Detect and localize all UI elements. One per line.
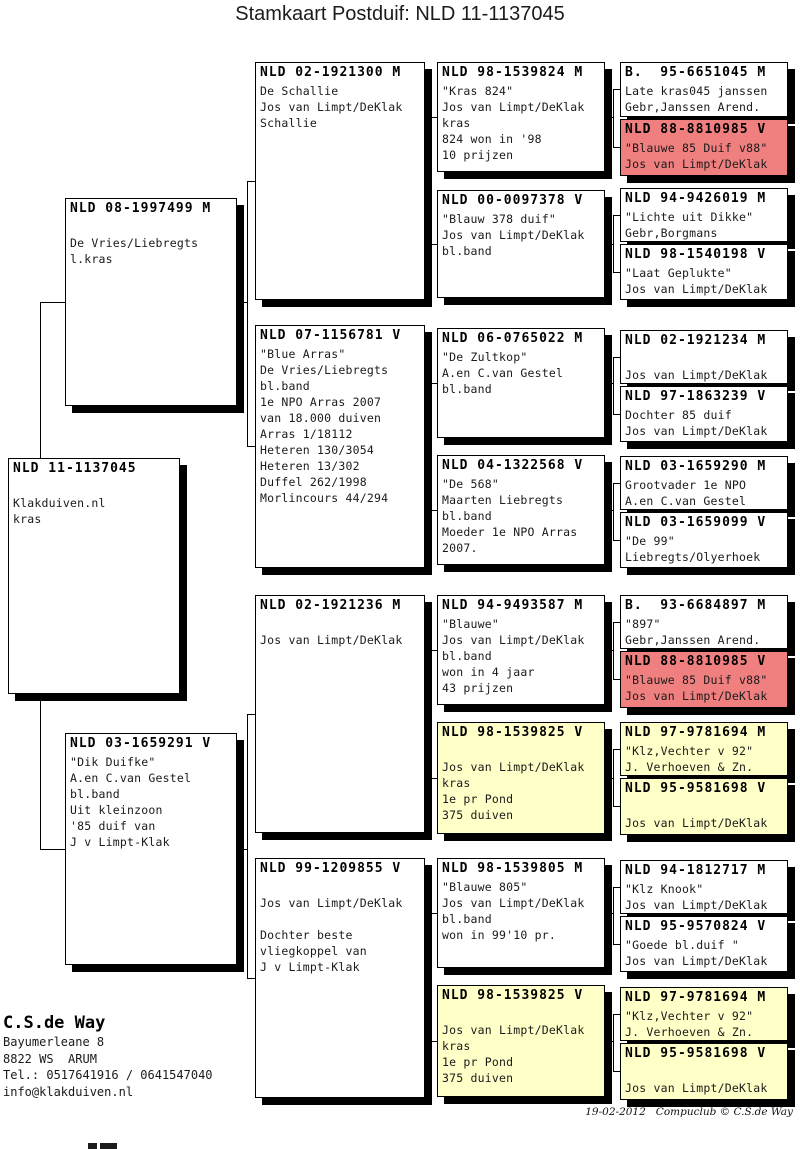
ring-number: NLD 00-0097378 V — [442, 192, 600, 210]
ring-number: NLD 04-1322568 V — [442, 457, 600, 475]
box-text-line: 1e pr Pond — [442, 791, 600, 807]
box-text-line: Late kras045 janssen — [625, 83, 783, 99]
box-text-line — [70, 219, 232, 235]
box-text-line: '85 duif van — [70, 818, 232, 834]
pedigree-box-dss: NLD 94-9493587 M"Blauwe"Jos van Limpt/De… — [437, 595, 605, 705]
pedigree-box-sds-d: NLD 97-1863239 VDochter 85 duifJos van L… — [620, 386, 788, 442]
box-text-line: kras — [442, 1038, 600, 1054]
box-text-line: Jos van Limpt/DeKlak — [442, 759, 600, 775]
ring-number: NLD 97-1863239 V — [625, 388, 783, 406]
ring-number: NLD 06-0765022 M — [442, 330, 600, 348]
box-text-line: kras — [442, 775, 600, 791]
box-text-line: "Klz,Vechter v 92" — [625, 1008, 783, 1024]
box-text-line: Jos van Limpt/DeKlak — [442, 1022, 600, 1038]
ring-number: NLD 03-1659099 V — [625, 514, 783, 532]
box-text-line: won in 4 jaar — [442, 664, 600, 680]
box-text-line: Heteren 130/3054 — [260, 442, 420, 458]
box-text-line: bl.band — [442, 648, 600, 664]
box-text-line: bl.band — [442, 381, 600, 397]
box-text-line: bl.band — [70, 786, 232, 802]
pedigree-box-dds-d: NLD 95-9570824 V"Goede bl.duif "Jos van … — [620, 916, 788, 972]
pedigree-box-ddd: NLD 98-1539825 V Jos van Limpt/DeKlakkra… — [437, 985, 605, 1097]
box-text-line: Jos van Limpt/DeKlak — [625, 1080, 783, 1096]
pedigree-box-sdd-s: NLD 03-1659290 MGrootvader 1e NPOA.en C.… — [620, 456, 788, 510]
pedigree-tree: NLD 11-1137045 Klakduiven.nlkrasNLD 08-1… — [0, 0, 800, 1149]
box-text-line: Jos van Limpt/DeKlak — [625, 423, 783, 439]
box-text-line: Klakduiven.nl — [13, 495, 175, 511]
pedigree-box-ddd-s: NLD 97-9781694 M"Klz,Vechter v 92"J. Ver… — [620, 987, 788, 1041]
ring-number: NLD 98-1540198 V — [625, 246, 783, 264]
box-text-line: "Dik Duifke" — [70, 754, 232, 770]
ring-number: NLD 02-1921236 M — [260, 597, 420, 615]
pedigree-box-ds: NLD 02-1921236 M Jos van Limpt/DeKlak — [255, 595, 425, 833]
ring-number: NLD 97-9781694 M — [625, 724, 783, 742]
owner-address-line1: Bayumerleane 8 — [3, 1034, 213, 1051]
pedigree-box-ssd-d: NLD 98-1540198 V"Laat Geplukte"Jos van L… — [620, 244, 788, 300]
ring-number: NLD 99-1209855 V — [260, 860, 420, 878]
box-text-line: "Klz Knook" — [625, 881, 783, 897]
ring-number: NLD 98-1539805 M — [442, 860, 600, 878]
box-text-line: J v Limpt-Klak — [70, 834, 232, 850]
box-text-line — [442, 1006, 600, 1022]
box-text-line: "Lichte uit Dikke" — [625, 209, 783, 225]
print-info: 19-02-2012 Compuclub © C.S.de Way — [585, 1106, 793, 1118]
box-text-line — [625, 351, 783, 367]
box-text-line: "De Zultkop" — [442, 349, 600, 365]
stamkaart-page: Stamkaart Postduif: NLD 11-1137045 NLD 1… — [0, 0, 800, 1149]
box-text-line: 375 duiven — [442, 1070, 600, 1086]
box-text-line: bl.band — [442, 508, 600, 524]
box-text-line — [260, 879, 420, 895]
pedigree-box-sd: NLD 07-1156781 V"Blue Arras"De Vries/Lie… — [255, 325, 425, 568]
box-text-line: Schallie — [260, 115, 420, 131]
box-text-line: J. Verhoeven & Zn. — [625, 1024, 783, 1040]
box-text-line: De Vries/Liebregts — [70, 235, 232, 251]
pedigree-box-ssd: NLD 00-0097378 V"Blauw 378 duif"Jos van … — [437, 190, 605, 298]
box-text-line: Maarten Liebregts — [442, 492, 600, 508]
pedigree-box-dsd-s: NLD 97-9781694 M"Klz,Vechter v 92"J. Ver… — [620, 722, 788, 776]
pedigree-box-dsd-d: NLD 95-9581698 V Jos van Limpt/DeKlak — [620, 778, 788, 835]
ring-number: NLD 88-8810985 V — [625, 653, 783, 671]
box-text-line: "Blue Arras" — [260, 346, 420, 362]
pedigree-box-dss-s: B. 93-6684897 M"897"Gebr,Janssen Arend. — [620, 595, 788, 649]
box-text-line: J v Limpt-Klak — [260, 959, 420, 975]
ring-number: NLD 94-9493587 M — [442, 597, 600, 615]
box-text-line: 824 won in '98 — [442, 131, 600, 147]
box-text-line: J. Verhoeven & Zn. — [625, 759, 783, 775]
ring-number: NLD 98-1539825 V — [442, 724, 600, 742]
pedigree-box-sss: NLD 98-1539824 M"Kras 824"Jos van Limpt/… — [437, 62, 605, 172]
box-text-line: "Blauwe 85 Duif v88" — [625, 140, 783, 156]
ring-number: NLD 95-9581698 V — [625, 1045, 783, 1063]
box-text-line: Dochter 85 duif — [625, 407, 783, 423]
box-text-line — [625, 799, 783, 815]
ring-number: NLD 08-1997499 M — [70, 200, 232, 218]
ring-number: NLD 02-1921234 M — [625, 332, 783, 350]
box-text-line: Jos van Limpt/DeKlak — [442, 227, 600, 243]
box-text-line: "Blauw 378 duif" — [442, 211, 600, 227]
box-text-line — [13, 479, 175, 495]
box-text-line — [442, 743, 600, 759]
box-text-line: Arras 1/18112 — [260, 426, 420, 442]
box-text-line: Jos van Limpt/DeKlak — [442, 99, 600, 115]
box-text-line: Jos van Limpt/DeKlak — [625, 688, 783, 704]
ring-number: NLD 11-1137045 — [13, 460, 175, 478]
pedigree-box-ddd-d: NLD 95-9581698 V Jos van Limpt/DeKlak — [620, 1043, 788, 1100]
box-text-line: Grootvader 1e NPO — [625, 477, 783, 493]
pedigree-box-dd: NLD 99-1209855 V Jos van Limpt/DeKlak Do… — [255, 858, 425, 1098]
box-text-line: "De 99" — [625, 533, 783, 549]
box-text-line: "Klz,Vechter v 92" — [625, 743, 783, 759]
box-text-line: 43 prijzen — [442, 680, 600, 696]
ring-number: NLD 03-1659291 V — [70, 735, 232, 753]
owner-contact-block: C.S.de Way Bayumerleane 8 8822 WS ARUM T… — [3, 1012, 213, 1100]
box-text-line: l.kras — [70, 251, 232, 267]
box-text-line: "Goede bl.duif " — [625, 937, 783, 953]
ring-number: NLD 94-1812717 M — [625, 862, 783, 880]
ring-number: B. 93-6684897 M — [625, 597, 783, 615]
box-text-line: Uit kleinzoon — [70, 802, 232, 818]
owner-address-line2: 8822 WS ARUM — [3, 1051, 213, 1068]
pedigree-box-subject: NLD 11-1137045 Klakduiven.nlkras — [8, 458, 180, 694]
box-text-line: Gebr,Janssen Arend. — [625, 632, 783, 648]
box-text-line: bl.band — [442, 243, 600, 259]
pedigree-box-dds-s: NLD 94-1812717 M"Klz Knook"Jos van Limpt… — [620, 860, 788, 914]
box-text-line: Gebr,Janssen Arend. — [625, 99, 783, 115]
owner-email: info@klakduiven.nl — [3, 1084, 213, 1101]
box-text-line: Jos van Limpt/DeKlak — [625, 367, 783, 383]
cropped-text-artifact — [100, 1143, 117, 1149]
pedigree-box-sdd: NLD 04-1322568 V"De 568"Maarten Liebregt… — [437, 455, 605, 565]
box-text-line: "Laat Geplukte" — [625, 265, 783, 281]
box-text-line: Heteren 13/302 — [260, 458, 420, 474]
box-text-line: Jos van Limpt/DeKlak — [625, 897, 783, 913]
box-text-line: van 18.000 duiven — [260, 410, 420, 426]
box-text-line: Jos van Limpt/DeKlak — [625, 281, 783, 297]
box-text-line: "De 568" — [442, 476, 600, 492]
ring-number: NLD 95-9570824 V — [625, 918, 783, 936]
box-text-line: Morlincours 44/294 — [260, 490, 420, 506]
box-text-line: won in 99'10 pr. — [442, 927, 600, 943]
ring-number: NLD 88-8810985 V — [625, 121, 783, 139]
box-text-line: "Blauwe 805" — [442, 879, 600, 895]
ring-number: NLD 95-9581698 V — [625, 780, 783, 798]
box-text-line: A.en C.van Gestel — [70, 770, 232, 786]
box-text-line: kras — [442, 115, 600, 131]
pedigree-box-dam: NLD 03-1659291 V"Dik Duifke"A.en C.van G… — [65, 733, 237, 965]
ring-number: NLD 98-1539824 M — [442, 64, 600, 82]
ring-number: NLD 97-9781694 M — [625, 989, 783, 1007]
box-text-line: Gebr,Borgmans — [625, 225, 783, 241]
ring-number: NLD 07-1156781 V — [260, 327, 420, 345]
box-text-line: kras — [13, 511, 175, 527]
box-text-line: bl.band — [442, 911, 600, 927]
box-text-line: Jos van Limpt/DeKlak — [442, 632, 600, 648]
box-text-line: A.en C.van Gestel — [442, 365, 600, 381]
pedigree-box-sds: NLD 06-0765022 M"De Zultkop"A.en C.van G… — [437, 328, 605, 438]
box-text-line: Liebregts/Olyerhoek — [625, 549, 783, 565]
box-text-line: Jos van Limpt/DeKlak — [625, 815, 783, 831]
box-text-line: Jos van Limpt/DeKlak — [625, 953, 783, 969]
ring-number: NLD 94-9426019 M — [625, 190, 783, 208]
box-text-line: Dochter beste — [260, 927, 420, 943]
pedigree-box-ss: NLD 02-1921300 MDe SchallieJos van Limpt… — [255, 62, 425, 300]
box-text-line: 1e NPO Arras 2007 — [260, 394, 420, 410]
ring-number: NLD 98-1539825 V — [442, 987, 600, 1005]
box-text-line: Jos van Limpt/DeKlak — [260, 895, 420, 911]
box-text-line — [260, 911, 420, 927]
ring-number: NLD 03-1659290 M — [625, 458, 783, 476]
pedigree-box-sss-s: B. 95-6651045 MLate kras045 janssenGebr,… — [620, 62, 788, 117]
owner-phone: Tel.: 0517641916 / 0641547040 — [3, 1067, 213, 1084]
box-text-line: 375 duiven — [442, 807, 600, 823]
box-text-line: vliegkoppel van — [260, 943, 420, 959]
pedigree-box-sire: NLD 08-1997499 M De Vries/Liebregtsl.kra… — [65, 198, 237, 406]
box-text-line: Jos van Limpt/DeKlak — [260, 632, 420, 648]
cropped-text-artifact — [88, 1143, 97, 1149]
box-text-line: "Blauwe 85 Duif v88" — [625, 672, 783, 688]
pedigree-box-sss-d: NLD 88-8810985 V"Blauwe 85 Duif v88"Jos … — [620, 119, 788, 176]
box-text-line: "897" — [625, 616, 783, 632]
box-text-line: Duffel 262/1998 — [260, 474, 420, 490]
pedigree-box-sds-s: NLD 02-1921234 M Jos van Limpt/DeKlak — [620, 330, 788, 384]
box-text-line: Jos van Limpt/DeKlak — [442, 895, 600, 911]
box-text-line: "Blauwe" — [442, 616, 600, 632]
ring-number: B. 95-6651045 M — [625, 64, 783, 82]
pedigree-box-sdd-d: NLD 03-1659099 V"De 99"Liebregts/Olyerho… — [620, 512, 788, 568]
box-text-line: 10 prijzen — [442, 147, 600, 163]
box-text-line: 1e pr Pond — [442, 1054, 600, 1070]
box-text-line: "Kras 824" — [442, 83, 600, 99]
box-text-line: bl.band — [260, 378, 420, 394]
box-text-line: Jos van Limpt/DeKlak — [625, 156, 783, 172]
pedigree-box-dds: NLD 98-1539805 M"Blauwe 805"Jos van Limp… — [437, 858, 605, 968]
pedigree-box-dss-d: NLD 88-8810985 V"Blauwe 85 Duif v88"Jos … — [620, 651, 788, 708]
box-text-line: A.en C.van Gestel — [625, 493, 783, 509]
pedigree-box-dsd: NLD 98-1539825 V Jos van Limpt/DeKlakkra… — [437, 722, 605, 834]
box-text-line — [625, 1064, 783, 1080]
ring-number: NLD 02-1921300 M — [260, 64, 420, 82]
box-text-line — [260, 616, 420, 632]
pedigree-box-ssd-s: NLD 94-9426019 M"Lichte uit Dikke"Gebr,B… — [620, 188, 788, 242]
box-text-line: De Vries/Liebregts — [260, 362, 420, 378]
box-text-line: 2007. — [442, 540, 600, 556]
box-text-line: De Schallie — [260, 83, 420, 99]
box-text-line: Moeder 1e NPO Arras — [442, 524, 600, 540]
box-text-line: Jos van Limpt/DeKlak — [260, 99, 420, 115]
owner-name: C.S.de Way — [3, 1012, 213, 1034]
